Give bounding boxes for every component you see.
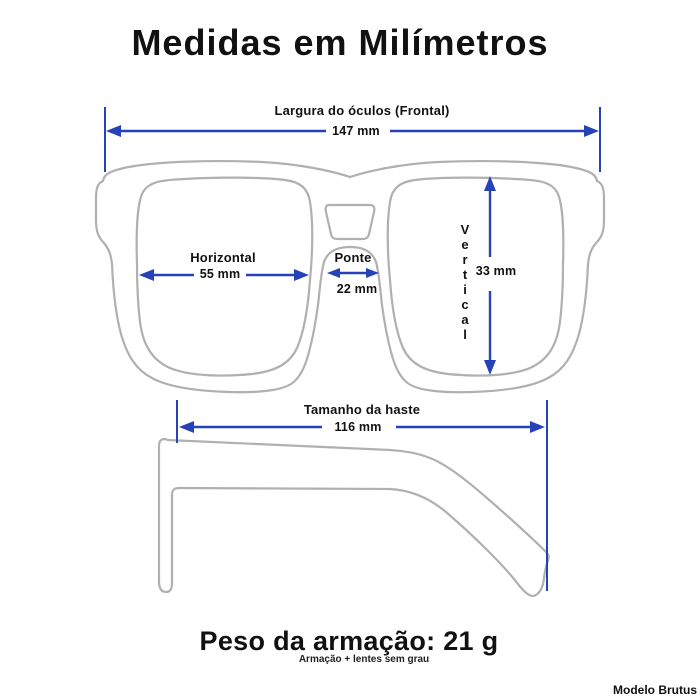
bridge-label: Ponte <box>334 250 371 265</box>
temple-arm-outline <box>159 439 549 596</box>
temple-length-value: 116 mm <box>334 420 381 434</box>
temple-length-label: Tamanho da haste <box>304 402 420 417</box>
measurement-diagram-page: { "title": "Medidas em Milímetros", "col… <box>0 0 700 700</box>
lens-horizontal-label: Horizontal <box>190 250 256 265</box>
front-view-drawing <box>96 161 604 392</box>
bridge-value: 22 mm <box>337 282 378 296</box>
frame-weight-note: Armação + lentes sem grau <box>299 654 429 665</box>
frame-width-label: Largura do óculos (Frontal) <box>274 103 449 118</box>
frame-weight-text: Peso da armação: 21 g <box>200 626 499 657</box>
side-view-drawing <box>159 439 549 596</box>
frame-width-value: 147 mm <box>332 124 380 138</box>
bridge-detail <box>326 205 375 239</box>
bridge-dimension-arrow <box>327 268 379 278</box>
page-title: Medidas em Milímetros <box>131 22 548 64</box>
lens-horizontal-value: 55 mm <box>200 267 241 281</box>
model-name: Modelo Brutus <box>613 683 697 697</box>
lens-vertical-value: 33 mm <box>476 264 517 278</box>
lens-vertical-label: Vertical <box>458 222 473 342</box>
